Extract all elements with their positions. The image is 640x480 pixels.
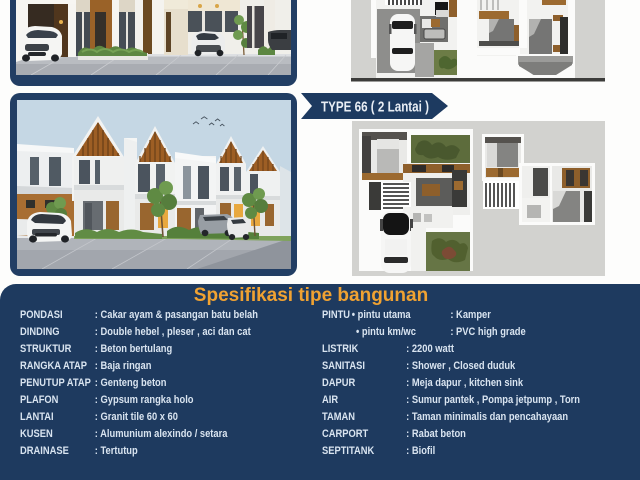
svg-text:TYPE 66 ( 2 Lantai ): TYPE 66 ( 2 Lantai ) <box>321 99 429 116</box>
